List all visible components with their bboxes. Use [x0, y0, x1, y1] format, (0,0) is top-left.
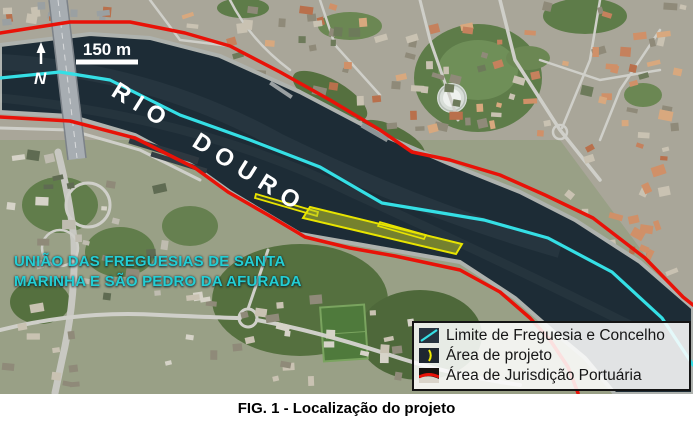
figure-caption: FIG. 1 - Localização do projeto: [0, 394, 693, 423]
scale-bar-rule: [76, 60, 138, 65]
legend-label-boundary: Limite de Freguesia e Concelho: [446, 327, 665, 345]
cyan-boundary-line-icon: [419, 328, 439, 343]
north-label: N: [34, 69, 47, 88]
map-region: RIO DOURO N 150 m UNIÃO DAS FREGUESIAS D…: [0, 0, 693, 394]
legend-item-project: Área de projeto: [419, 346, 684, 365]
legend-label-jurisdiction: Área de Jurisdição Portuária: [446, 367, 642, 385]
legend-item-jurisdiction: Área de Jurisdição Portuária: [419, 366, 684, 385]
scale-label: 150 m: [83, 40, 131, 59]
scale-bar: 150 m: [76, 40, 138, 65]
freguesia-label-line2: MARINHA E SÃO PEDRO DA AFURADA: [14, 272, 302, 292]
legend-item-boundary: Limite de Freguesia e Concelho: [419, 326, 684, 345]
figure-localizacao: RIO DOURO N 150 m UNIÃO DAS FREGUESIAS D…: [0, 0, 693, 423]
freguesia-label: UNIÃO DAS FREGUESIAS DE SANTA MARINHA E …: [14, 252, 302, 293]
legend-label-project: Área de projeto: [446, 347, 552, 365]
legend: Limite de Freguesia e Concelho Área de p…: [412, 321, 691, 391]
red-jurisdiction-line-icon: [419, 368, 439, 383]
yellow-project-area-icon: [419, 348, 439, 363]
freguesia-label-line1: UNIÃO DAS FREGUESIAS DE SANTA: [14, 252, 302, 272]
